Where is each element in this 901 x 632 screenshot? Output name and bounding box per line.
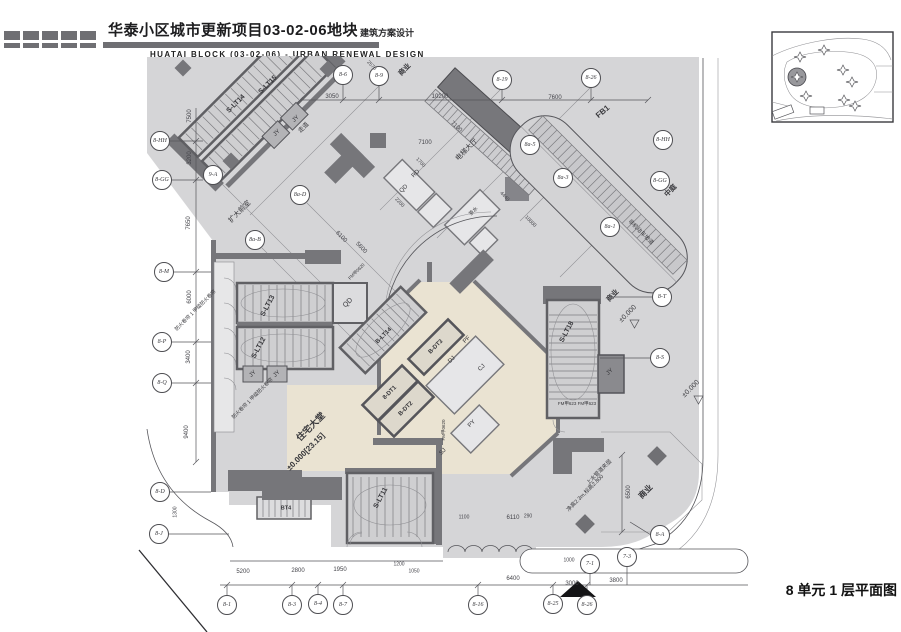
section-marker <box>560 581 596 597</box>
stair-bt4 <box>257 497 311 519</box>
drawing-title: 8 单元 1 层平面图 <box>773 580 897 600</box>
floor-plan-drawing <box>0 0 901 632</box>
drawing-sheet: 华泰小区城市更新项目03-02-06地块 建筑方案设计 HUATAI BLOCK… <box>0 0 901 632</box>
key-plan <box>772 32 893 122</box>
plan-body <box>147 12 702 558</box>
stair-core-s-lt11 <box>345 468 438 544</box>
